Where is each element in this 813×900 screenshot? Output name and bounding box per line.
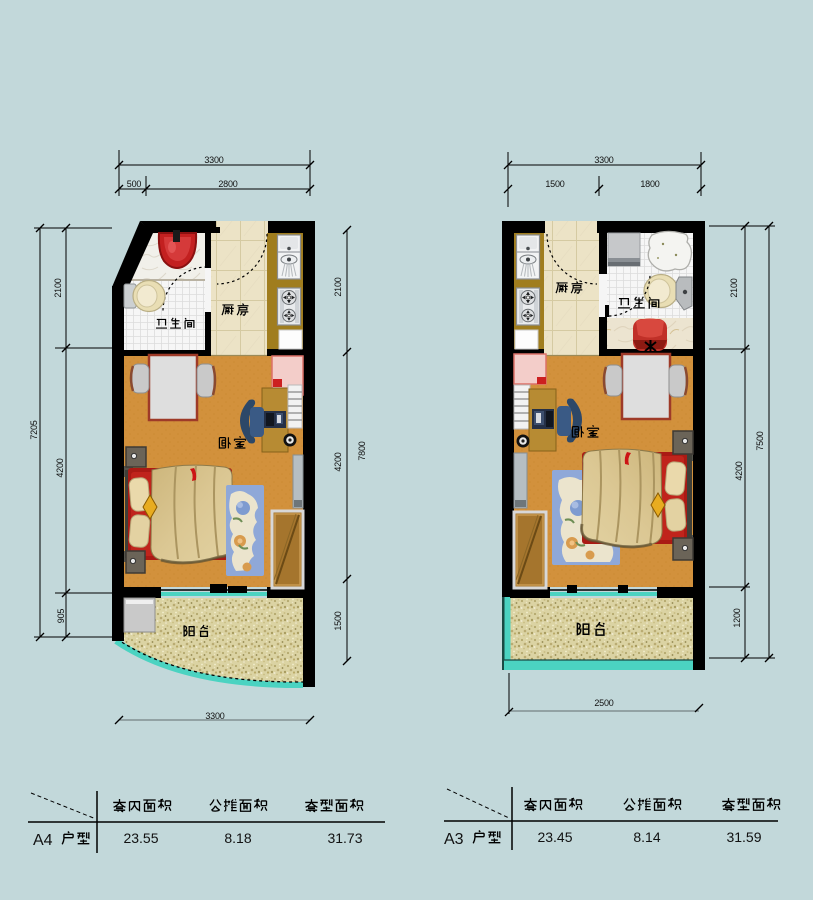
svg-text:A3: A3 [444,831,464,848]
svg-text:905: 905 [56,609,66,624]
svg-text:8.14: 8.14 [633,829,660,845]
svg-text:4200: 4200 [734,461,744,480]
svg-text:3300: 3300 [205,711,224,721]
svg-text:23.55: 23.55 [123,830,158,846]
svg-text:2500: 2500 [594,698,613,708]
svg-text:1800: 1800 [640,179,659,189]
svg-text:2100: 2100 [729,278,739,297]
svg-text:31.59: 31.59 [726,829,761,845]
svg-text:2100: 2100 [333,277,343,296]
svg-text:2100: 2100 [53,278,63,297]
svg-text:3300: 3300 [594,155,613,165]
svg-text:31.73: 31.73 [327,830,362,846]
svg-text:1500: 1500 [333,611,343,630]
svg-text:8.18: 8.18 [224,830,251,846]
svg-text:7800: 7800 [357,441,367,460]
svg-text:23.45: 23.45 [537,829,572,845]
svg-text:7205: 7205 [29,420,39,439]
svg-text:3300: 3300 [204,155,223,165]
svg-text:4200: 4200 [333,452,343,471]
svg-text:A4: A4 [33,832,53,849]
svg-text:2800: 2800 [218,179,237,189]
svg-text:500: 500 [127,179,142,189]
svg-text:4200: 4200 [55,458,65,477]
svg-text:1200: 1200 [732,608,742,627]
svg-text:1500: 1500 [545,179,564,189]
svg-text:7500: 7500 [755,431,765,450]
